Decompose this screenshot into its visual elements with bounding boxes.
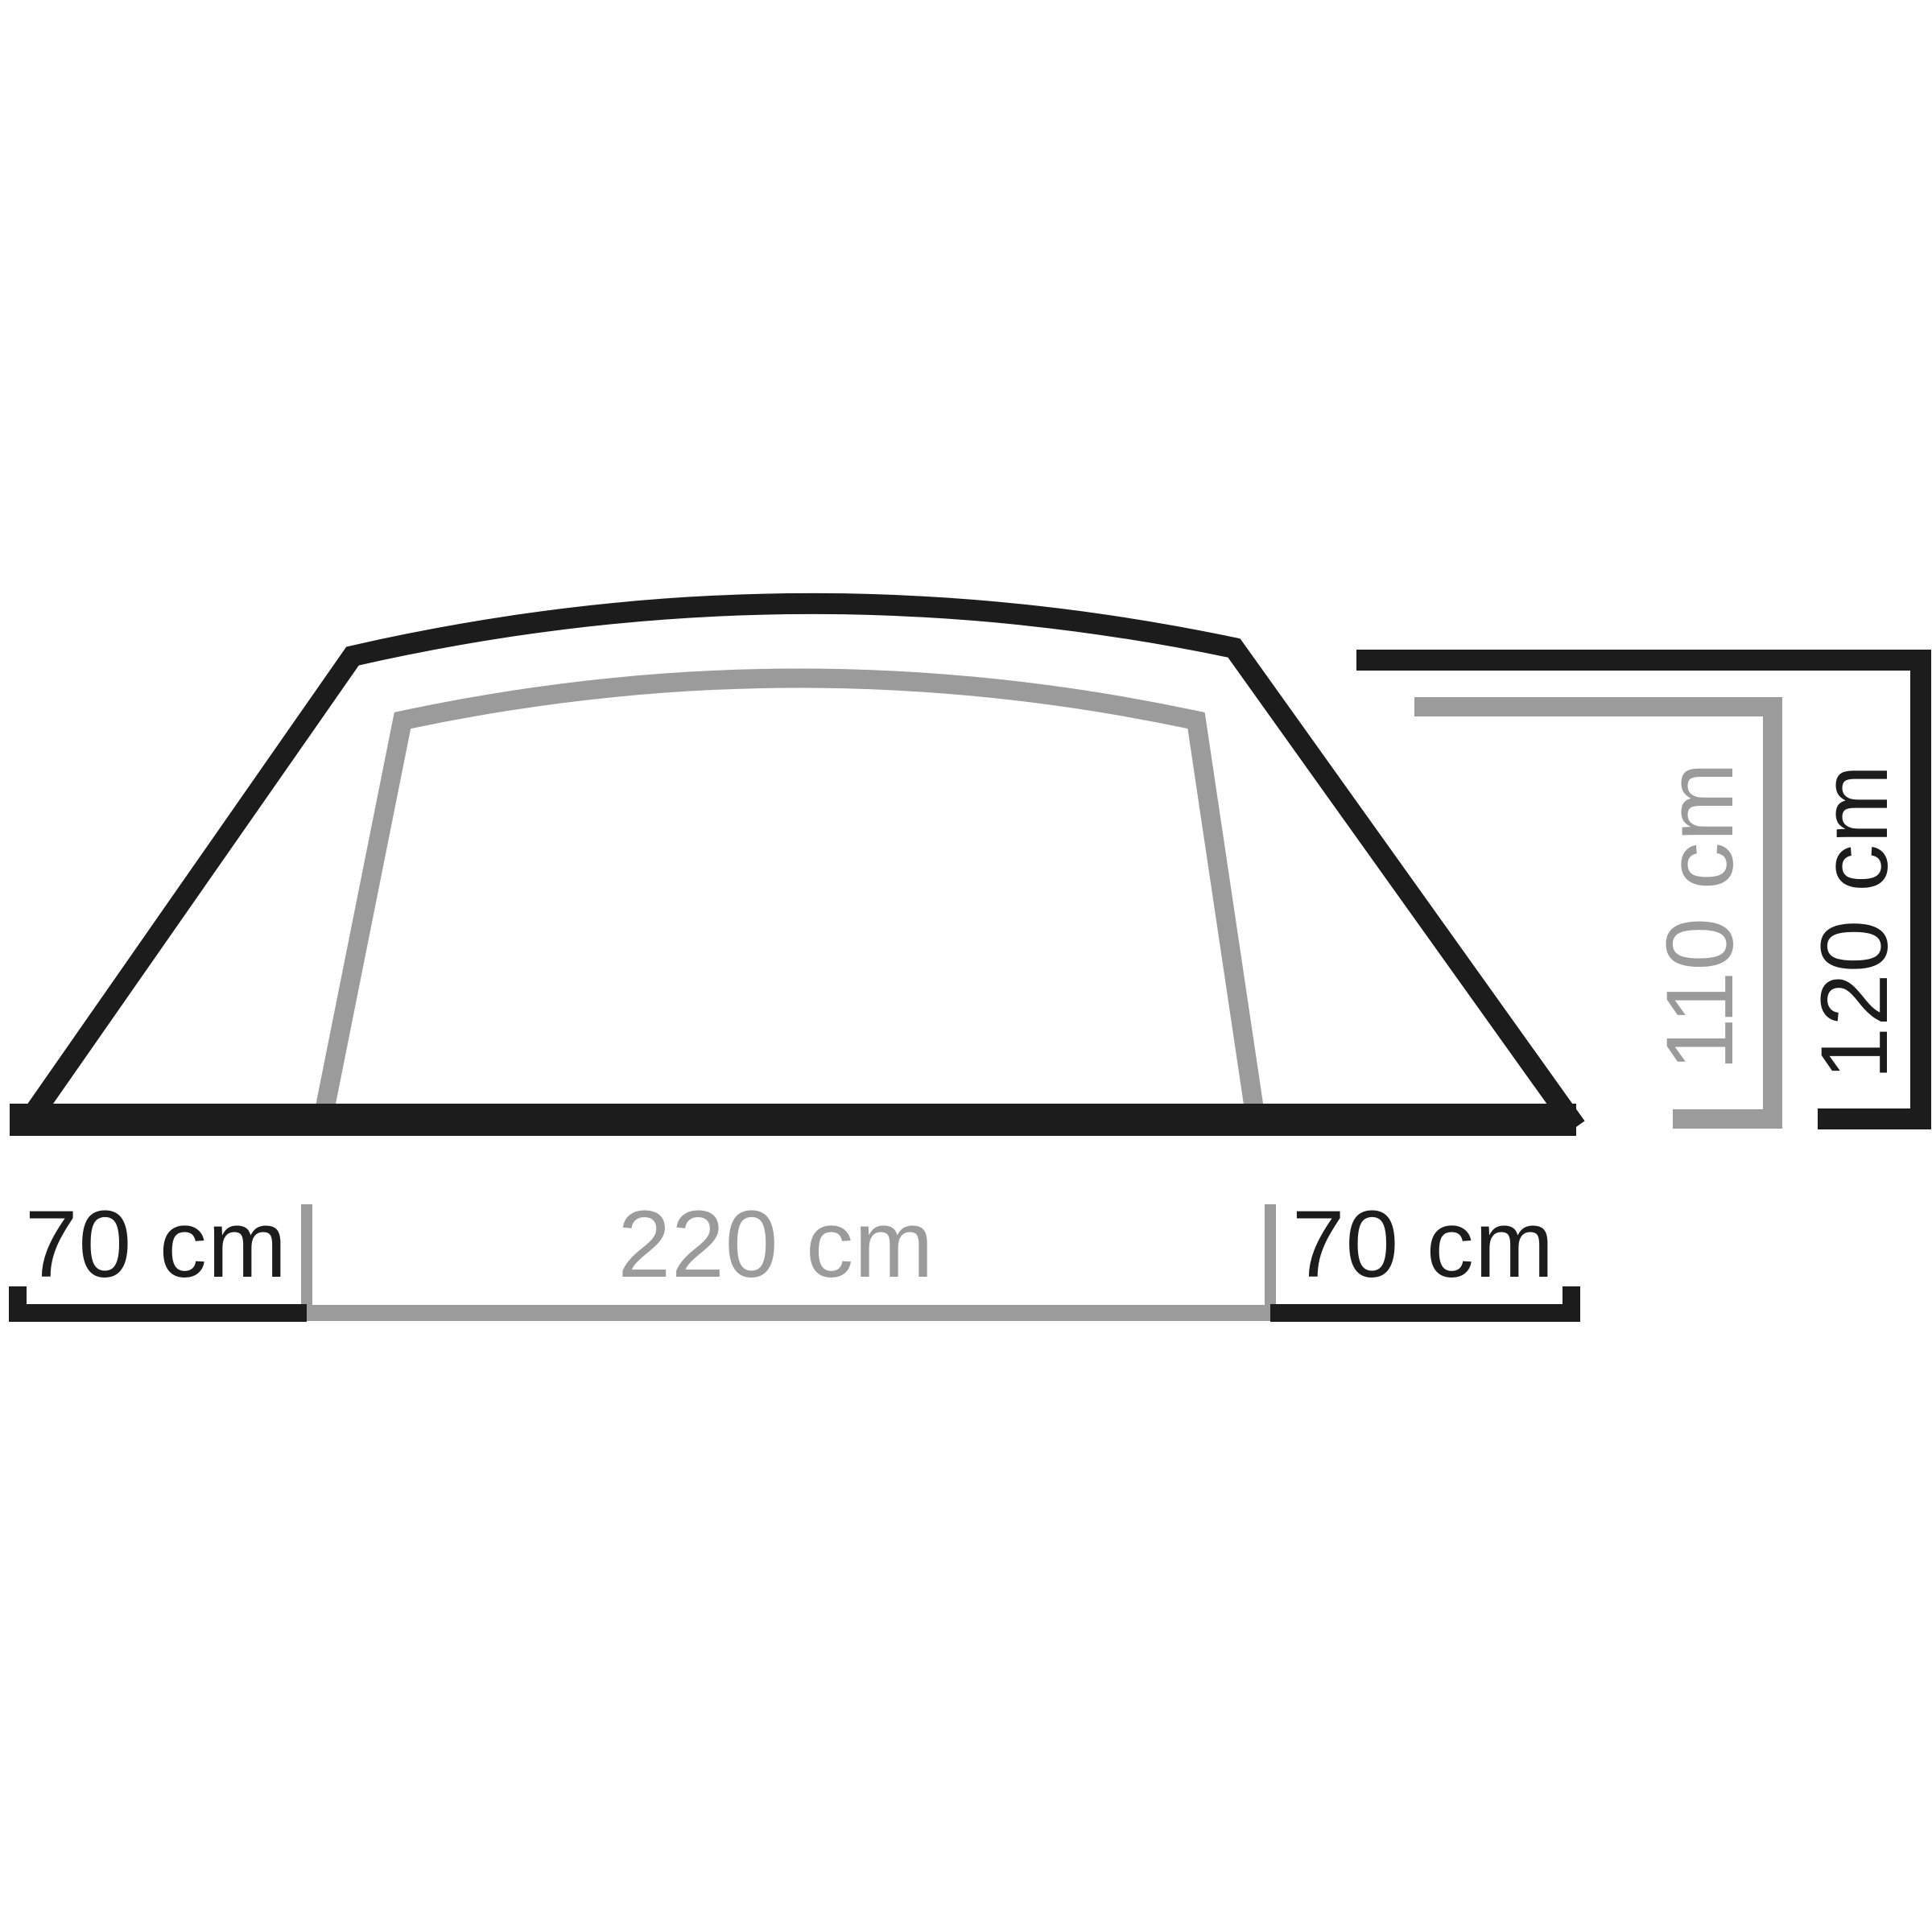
inner-height-label: 110 cm (1647, 762, 1753, 1071)
tent-dimension-diagram: 110 cm 120 cm 70 cm 220 cm 70 cm (0, 0, 1932, 1932)
right-porch-width-label: 70 cm (1292, 1191, 1554, 1298)
inner-width-label: 220 cm (618, 1191, 935, 1298)
inner-tent-outline (320, 679, 1257, 1132)
outer-height-label: 120 cm (1802, 764, 1908, 1080)
left-porch-width-label: 70 cm (25, 1191, 287, 1298)
